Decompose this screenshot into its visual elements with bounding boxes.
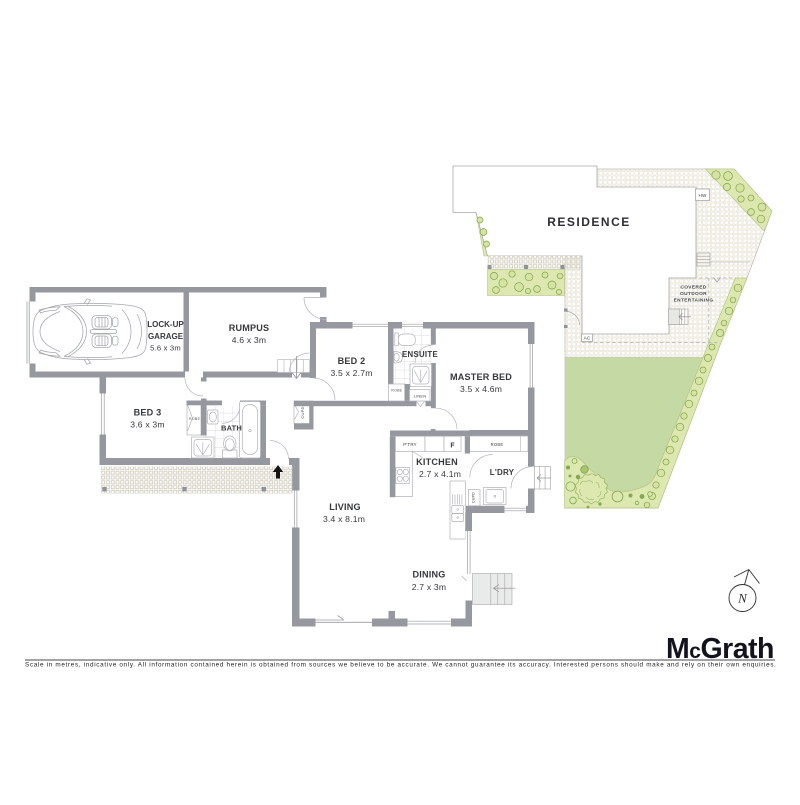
- svg-text:N: N: [737, 591, 748, 606]
- svg-text:ROBE: ROBE: [189, 417, 201, 421]
- svg-text:CUPD: CUPD: [472, 492, 476, 503]
- svg-text:LINEN: LINEN: [414, 394, 426, 399]
- svg-text:LOCK-UP: LOCK-UP: [147, 320, 184, 329]
- svg-text:ROBE: ROBE: [391, 388, 402, 392]
- svg-text:BATH: BATH: [221, 424, 242, 433]
- svg-text:5.6 x 3m: 5.6 x 3m: [150, 344, 181, 353]
- svg-text:KITCHEN: KITCHEN: [416, 457, 458, 467]
- svg-text:L'DRY: L'DRY: [490, 468, 515, 477]
- svg-text:OUTDOOR: OUTDOOR: [680, 291, 707, 297]
- svg-text:3.5 x 4.6m: 3.5 x 4.6m: [460, 384, 502, 394]
- svg-text:COVERED: COVERED: [680, 285, 706, 291]
- svg-text:4.6 x 3m: 4.6 x 3m: [232, 335, 267, 345]
- svg-text:F: F: [450, 443, 455, 450]
- svg-text:GARAGE: GARAGE: [148, 332, 184, 341]
- svg-text:3.4 x 8.1m: 3.4 x 8.1m: [323, 514, 365, 524]
- svg-text:P'TRY: P'TRY: [403, 442, 416, 447]
- svg-text:ROBE: ROBE: [491, 442, 504, 447]
- svg-text:RUMPUS: RUMPUS: [229, 323, 270, 333]
- svg-text:MASTER BED: MASTER BED: [450, 372, 512, 382]
- svg-text:AC: AC: [584, 336, 591, 341]
- svg-text:3.5 x 2.7m: 3.5 x 2.7m: [330, 368, 372, 378]
- svg-text:DINING: DINING: [412, 570, 445, 580]
- svg-text:BED 2: BED 2: [338, 356, 366, 366]
- svg-text:ENTERTAINING: ENTERTAINING: [674, 298, 714, 304]
- svg-text:RESIDENCE: RESIDENCE: [547, 215, 631, 229]
- svg-text:Scale in metres, indicative on: Scale in metres, indicative only. All in…: [25, 662, 777, 669]
- svg-text:ENSUITE: ENSUITE: [402, 350, 438, 359]
- svg-text:2.7 x 4.1m: 2.7 x 4.1m: [419, 469, 461, 479]
- svg-text:BED 3: BED 3: [134, 408, 162, 418]
- svg-text:3.6 x 3m: 3.6 x 3m: [130, 420, 165, 430]
- svg-text:2.7 x 3m: 2.7 x 3m: [412, 582, 447, 592]
- svg-text:LIVING: LIVING: [329, 502, 361, 512]
- svg-text:CUPD: CUPD: [300, 406, 305, 418]
- svg-text:HW: HW: [698, 193, 707, 198]
